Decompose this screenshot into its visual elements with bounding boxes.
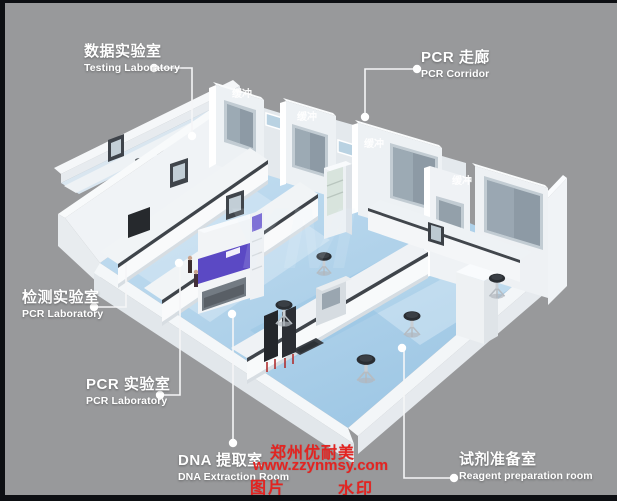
floorplan-3d-render: YM 缓冲 缓冲 缓冲 缓冲 [0,0,617,501]
label-zh: PCR 实验室 [86,377,170,394]
label-zh: 数据实验室 [84,44,180,61]
label-inspection-laboratory: 检测实验室 PCR Laboratory [22,290,103,320]
label-reagent-preparation-room: 试剂准备室 Reagent preparation room [459,452,593,482]
label-en: Reagent preparation room [459,471,593,483]
frame-edge-left [0,0,5,501]
label-zh: PCR 走廊 [421,50,490,67]
label-pcr-laboratory: PCR 实验室 PCR Laboratory [86,377,170,407]
label-zh: 试剂准备室 [459,452,593,469]
lab-floorplan-screenshot: YM 缓冲 缓冲 缓冲 缓冲 数据实验室 Testing Lab [0,0,617,501]
buffer-room-label: 缓冲 [231,87,252,100]
watermark-website-url: www.zzynmsy.com [253,457,388,474]
label-zh: 检测实验室 [22,290,103,307]
label-en: PCR Laboratory [86,396,170,408]
label-en: Testing Laboratory [84,63,180,75]
frame-edge-top [0,0,617,3]
buffer-room-label: 缓冲 [363,137,384,150]
label-pcr-corridor: PCR 走廊 PCR Corridor [421,50,490,80]
label-testing-laboratory: 数据实验室 Testing Laboratory [84,44,180,74]
buffer-room-label: 缓冲 [296,110,317,123]
buffer-room-label: 缓冲 [451,174,472,187]
label-en: PCR Corridor [421,69,490,81]
frame-edge-bottom [0,495,617,501]
monogram-watermark: YM [225,191,356,287]
label-en: PCR Laboratory [22,309,103,321]
